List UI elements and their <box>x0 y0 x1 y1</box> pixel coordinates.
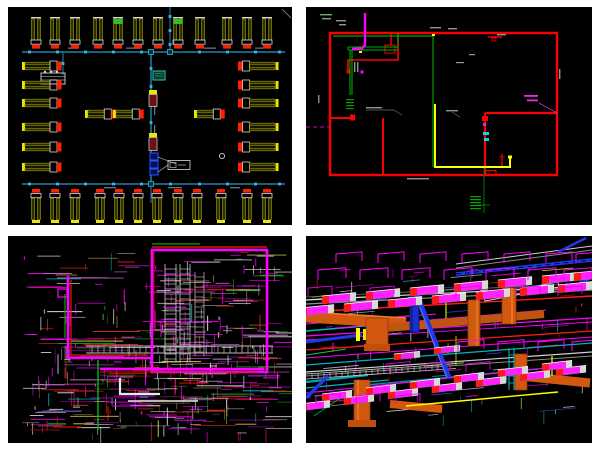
wireframe-overlay-plan-drawing <box>8 236 292 443</box>
viewport-power-plan <box>306 7 592 225</box>
viewport-mep-3d-model <box>306 236 592 443</box>
lighting-plan-drawing <box>8 7 292 225</box>
viewport-wireframe-overlay-plan <box>8 236 292 443</box>
cad-collage <box>0 0 600 450</box>
power-plan-drawing <box>306 7 592 225</box>
viewport-lighting-plan <box>8 7 292 225</box>
mep-3d-model-drawing <box>306 236 592 443</box>
